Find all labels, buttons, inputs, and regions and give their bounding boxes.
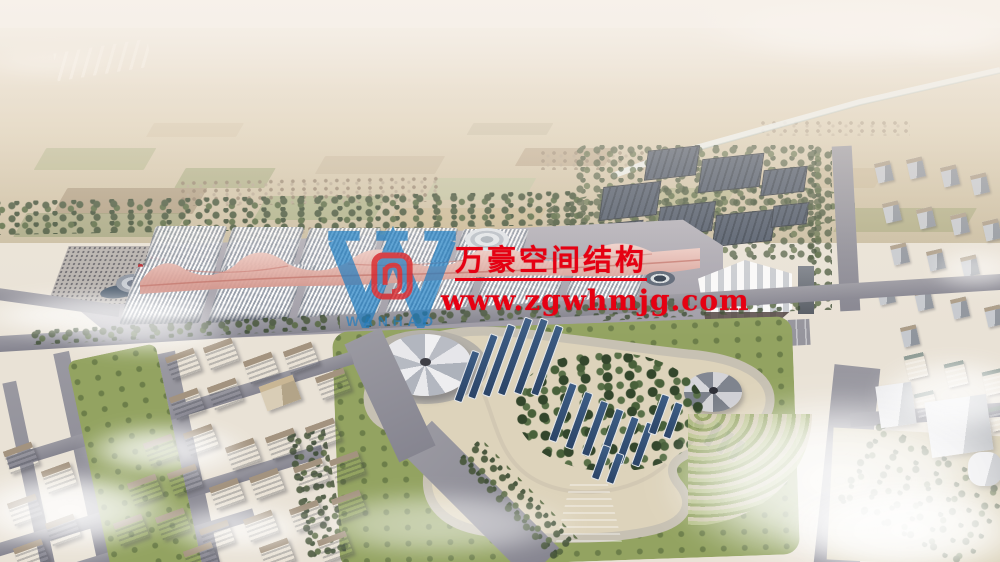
city-building [900,324,920,347]
cloud [55,318,245,356]
wanhao-logo: WANHAO [326,226,458,328]
apartment-building [207,378,243,411]
city-building [982,218,1000,241]
cloud [295,488,585,560]
solar-array [760,166,808,197]
city-building [950,296,970,319]
watermark-website: www.zgwhmjg.com [441,284,750,317]
solar-array [698,153,765,194]
aerial-rendering-exhibition-complex: WANHAO 万豪空间结构 www.zgwhmjg.com [0,0,1000,562]
solar-array [599,181,662,221]
cone-tip [420,358,431,366]
city-building [890,242,910,265]
logo-wordmark: WANHAO [346,314,438,328]
w-monogram-icon [328,231,456,314]
solar-array [644,145,700,180]
cone-tip [709,387,718,394]
solar-array [770,202,809,228]
watermark-company-name: 万豪空间结构 [455,246,647,281]
city-building [984,304,1000,327]
